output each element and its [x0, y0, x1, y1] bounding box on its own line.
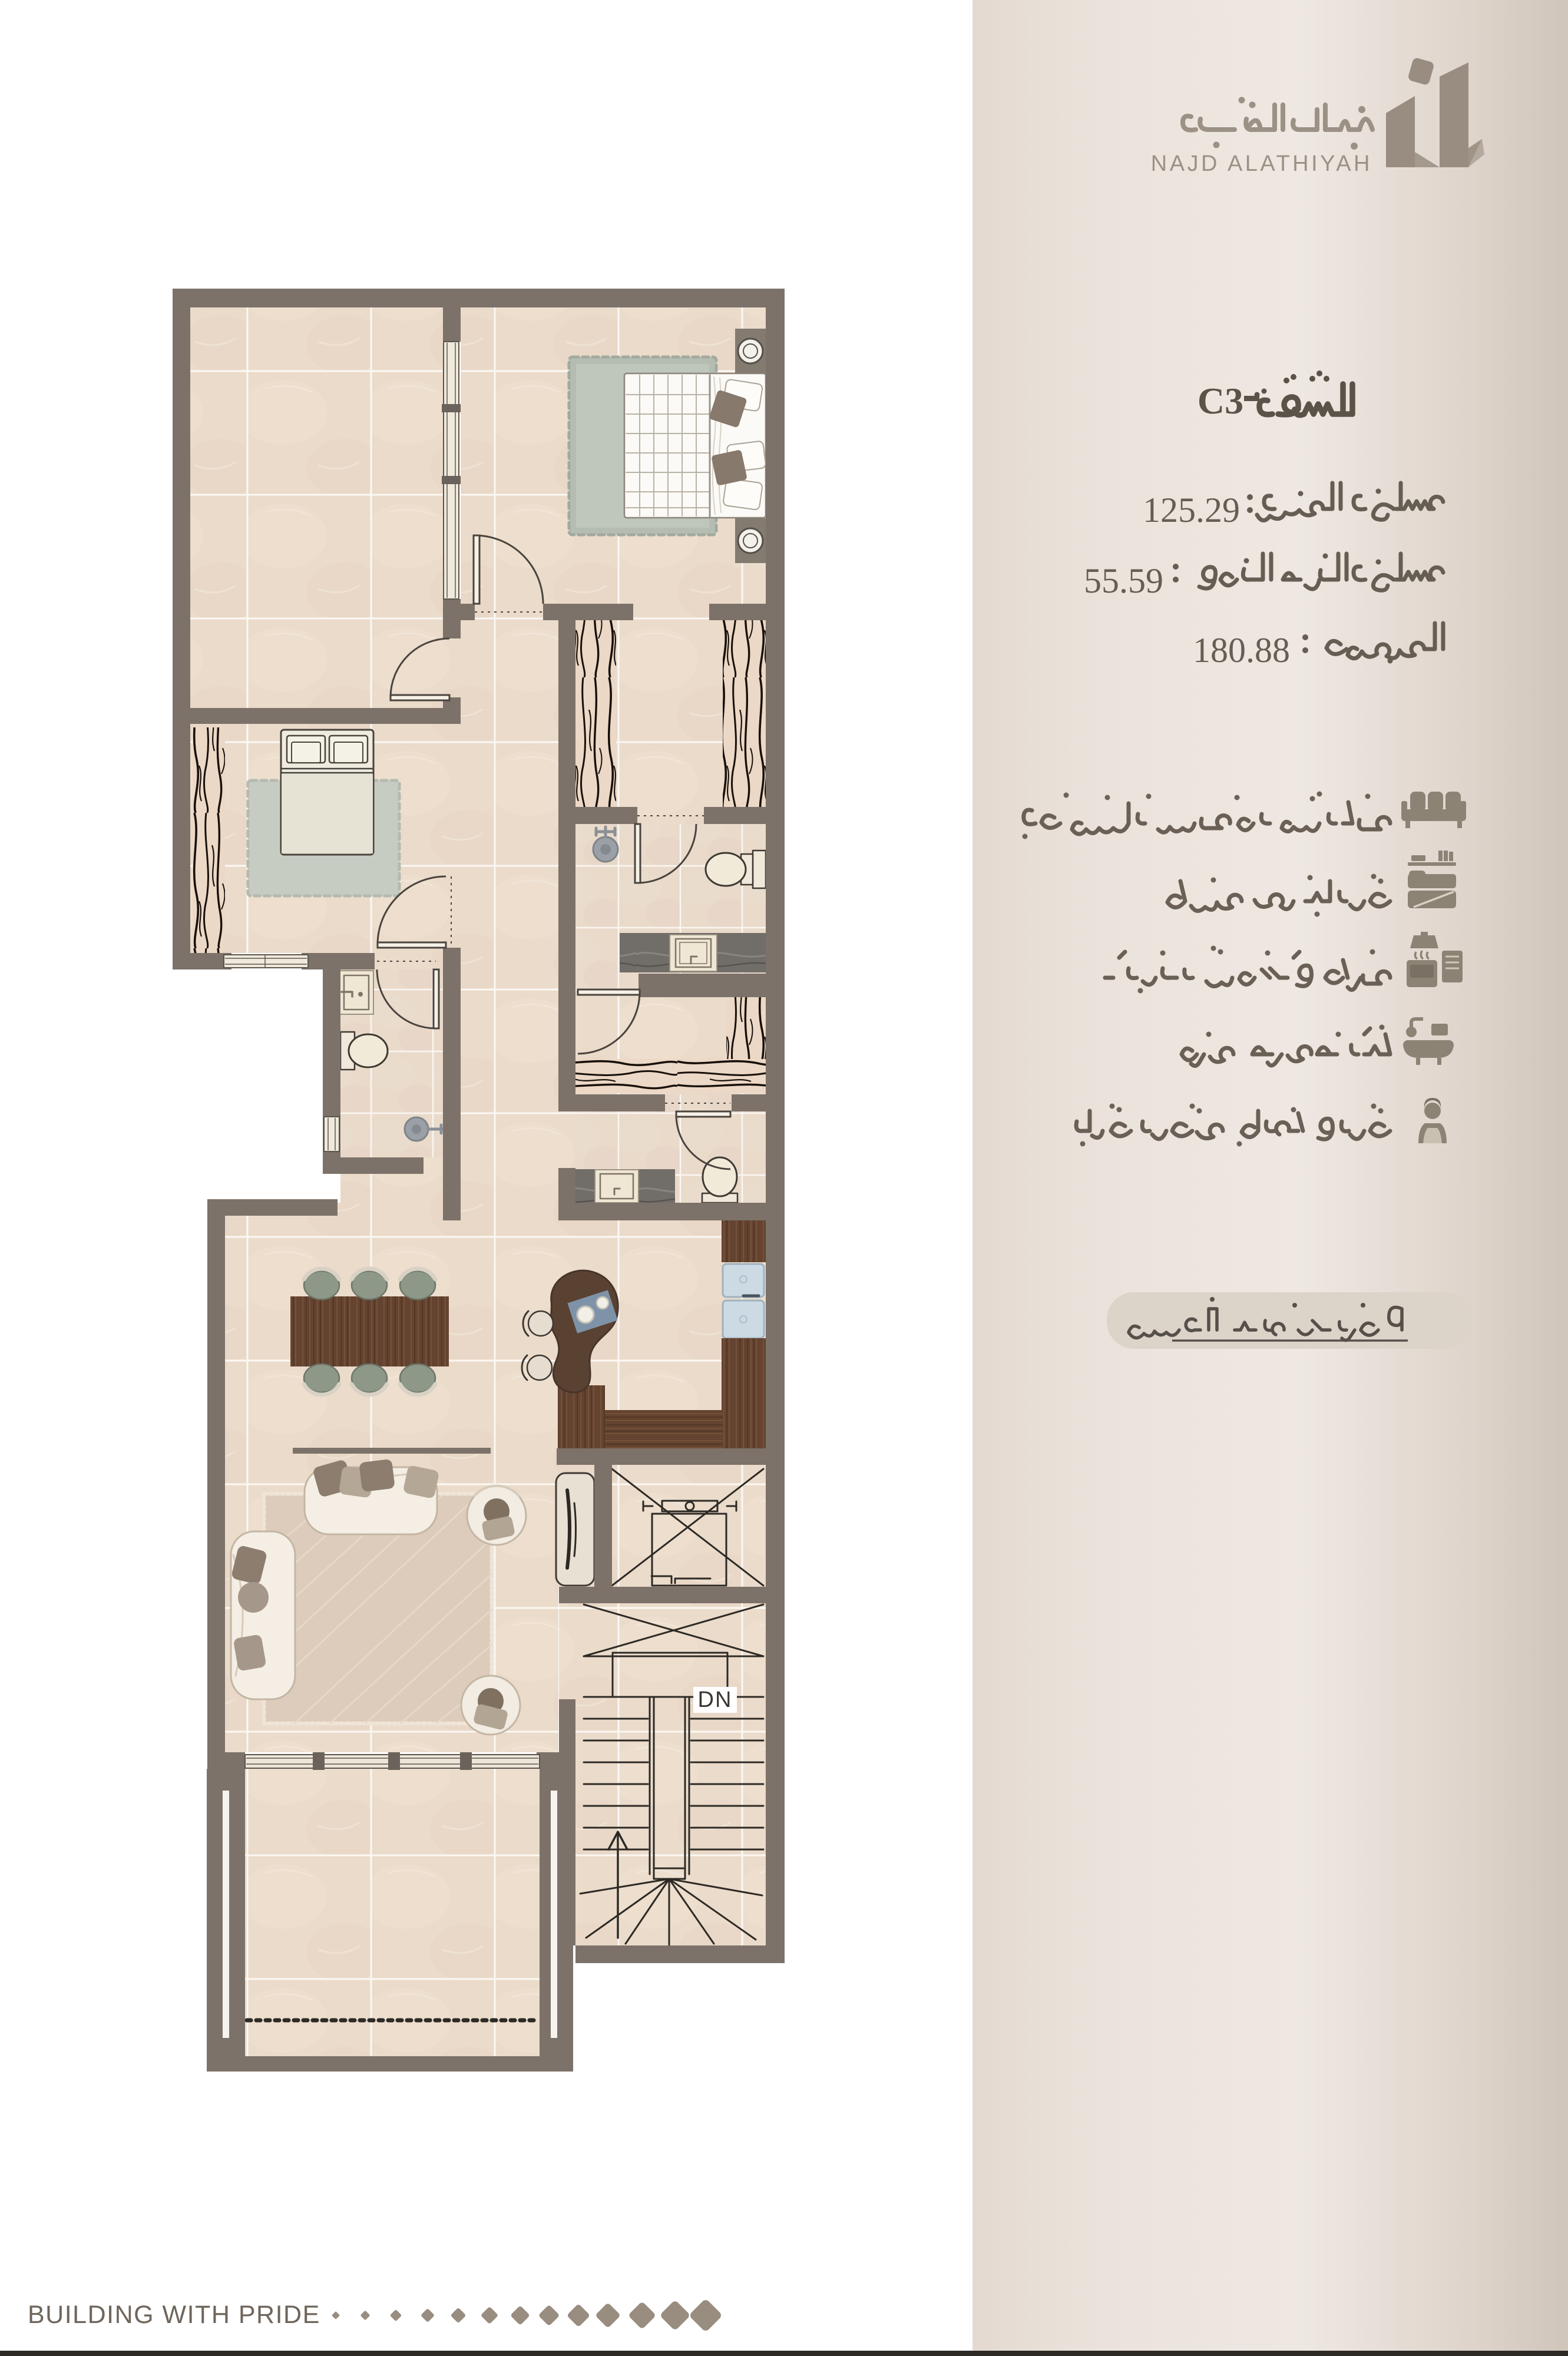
- svg-text:C3: C3: [1197, 380, 1243, 422]
- svg-text:NAJD ALATHIYAH: NAJD ALATHIYAH: [1151, 151, 1372, 176]
- svg-text:125.29: 125.29: [1143, 491, 1240, 530]
- svg-text:BUILDING WITH PRIDE: BUILDING WITH PRIDE: [28, 2301, 320, 2329]
- svg-text:DN: DN: [698, 1687, 733, 1712]
- svg-text:55.59: 55.59: [1084, 561, 1163, 600]
- svg-text:180.88: 180.88: [1193, 631, 1290, 670]
